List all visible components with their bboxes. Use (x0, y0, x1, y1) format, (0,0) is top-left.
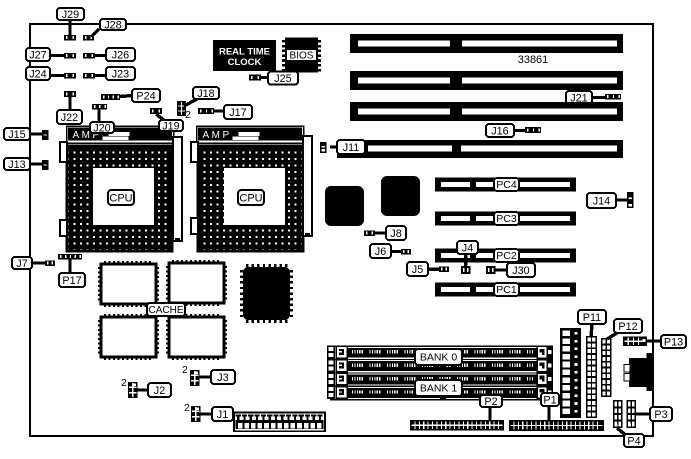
svg-text:PC2: PC2 (496, 250, 517, 262)
svg-text:P4: P4 (627, 435, 640, 447)
svg-text:PC4: PC4 (496, 179, 517, 191)
svg-text:J20: J20 (93, 122, 110, 134)
svg-text:J11: J11 (343, 142, 360, 154)
svg-text:BIOS: BIOS (290, 51, 314, 62)
svg-text:2: 2 (121, 377, 127, 389)
svg-text:CPU: CPU (239, 192, 262, 204)
svg-text:J15: J15 (8, 129, 25, 141)
svg-text:AMP: AMP (203, 130, 232, 141)
svg-text:J2: J2 (154, 385, 165, 397)
svg-text:J5: J5 (412, 264, 423, 276)
svg-text:J1: J1 (217, 409, 228, 421)
svg-text:2: 2 (184, 402, 190, 414)
svg-text:J19: J19 (162, 120, 179, 132)
svg-text:J29: J29 (62, 9, 79, 21)
svg-text:P2: P2 (484, 396, 497, 408)
svg-text:P17: P17 (62, 275, 81, 287)
svg-text:J4: J4 (462, 242, 473, 254)
svg-text:PC1: PC1 (496, 284, 517, 296)
svg-text:J26: J26 (112, 49, 129, 61)
svg-text:CLOCK: CLOCK (228, 57, 262, 68)
svg-text:CACHE: CACHE (148, 305, 183, 316)
svg-text:J25: J25 (274, 73, 291, 85)
svg-text:J8: J8 (390, 228, 401, 240)
svg-text:J16: J16 (491, 125, 508, 137)
svg-text:J18: J18 (197, 88, 214, 100)
svg-text:J6: J6 (375, 246, 386, 258)
svg-text:J13: J13 (8, 159, 25, 171)
svg-text:J27: J27 (29, 49, 46, 61)
svg-text:J24: J24 (29, 68, 46, 80)
svg-text:J30: J30 (512, 265, 529, 277)
svg-text:J7: J7 (16, 258, 27, 270)
svg-text:P13: P13 (664, 336, 683, 348)
svg-text:J22: J22 (61, 112, 78, 124)
svg-text:P11: P11 (583, 312, 601, 324)
svg-text:2: 2 (182, 364, 188, 376)
svg-text:P12: P12 (618, 321, 637, 333)
svg-text:P3: P3 (654, 409, 667, 421)
svg-text:P1: P1 (543, 394, 556, 406)
svg-text:PC3: PC3 (496, 213, 517, 225)
svg-text:J17: J17 (229, 107, 246, 119)
svg-text:33861: 33861 (518, 54, 549, 66)
svg-text:BANK 1: BANK 1 (420, 383, 458, 395)
svg-text:J28: J28 (104, 19, 121, 31)
svg-text:J14: J14 (593, 195, 610, 207)
svg-text:2: 2 (185, 109, 191, 121)
svg-text:REAL TIME: REAL TIME (219, 47, 270, 58)
svg-text:CPU: CPU (109, 192, 132, 204)
svg-text:J3: J3 (217, 372, 228, 384)
svg-text:J23: J23 (112, 68, 129, 80)
svg-text:BANK 0: BANK 0 (420, 352, 458, 364)
svg-text:P24: P24 (136, 90, 155, 102)
